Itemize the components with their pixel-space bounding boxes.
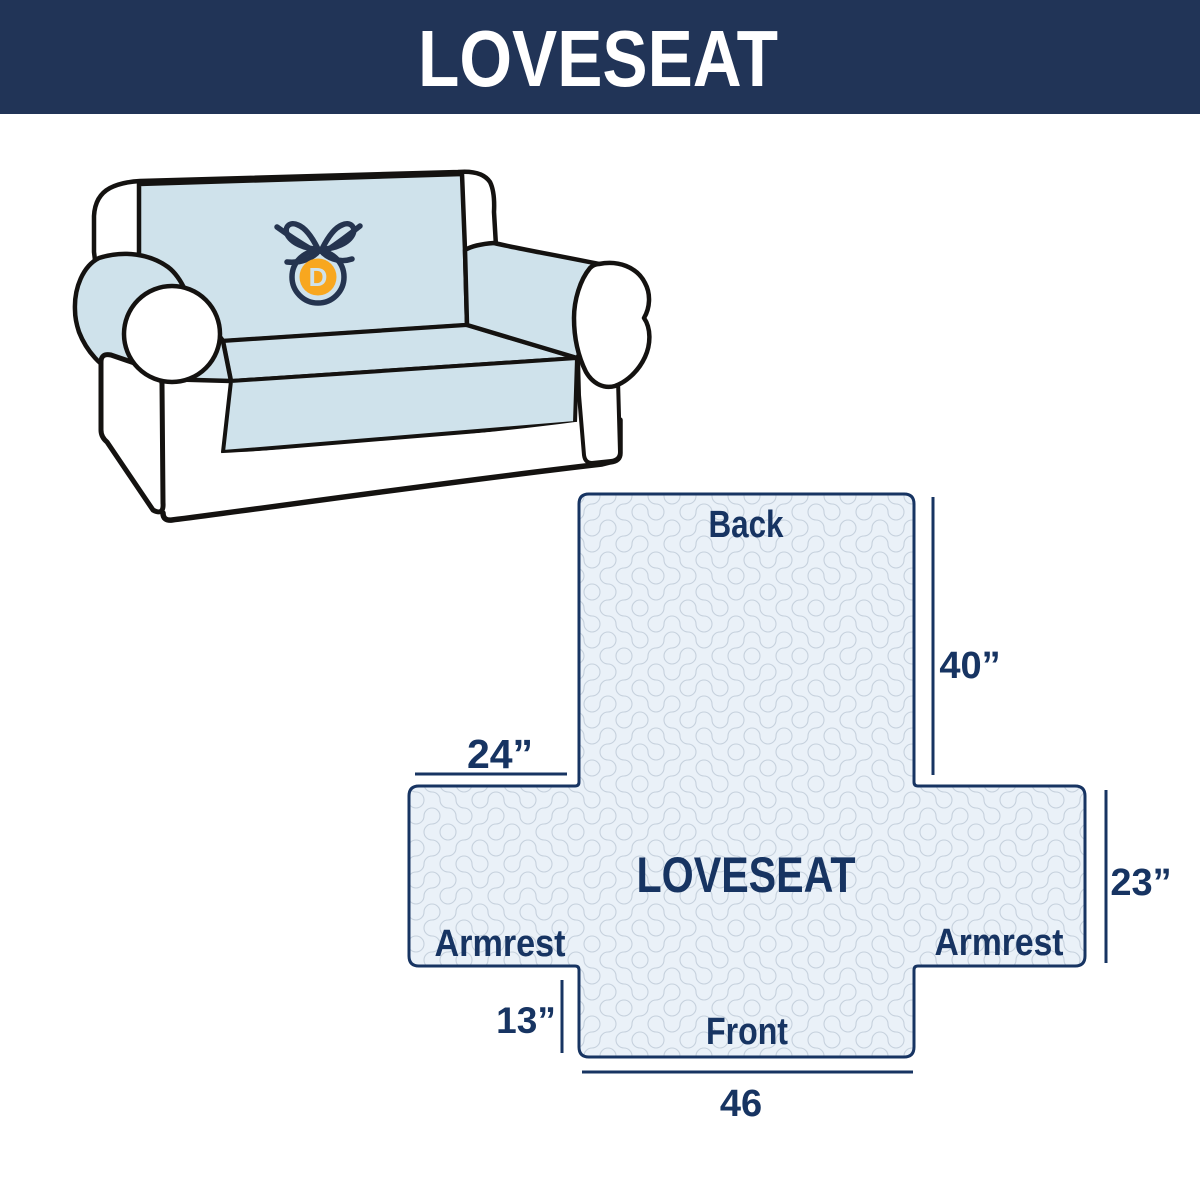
svg-text:Front: Front [706, 1011, 788, 1053]
svg-text:Back: Back [709, 504, 785, 546]
svg-text:LOVESEAT: LOVESEAT [418, 14, 778, 103]
svg-text:23”: 23” [1110, 862, 1171, 904]
svg-text:D: D [309, 262, 328, 292]
svg-text:13”: 13” [496, 1000, 556, 1041]
svg-text:46: 46 [720, 1083, 762, 1125]
svg-text:24”: 24” [467, 731, 533, 777]
svg-text:Armrest: Armrest [935, 922, 1064, 964]
svg-text:Armrest: Armrest [435, 923, 566, 965]
svg-text:LOVESEAT: LOVESEAT [637, 847, 856, 903]
svg-text:40”: 40” [939, 645, 1000, 687]
